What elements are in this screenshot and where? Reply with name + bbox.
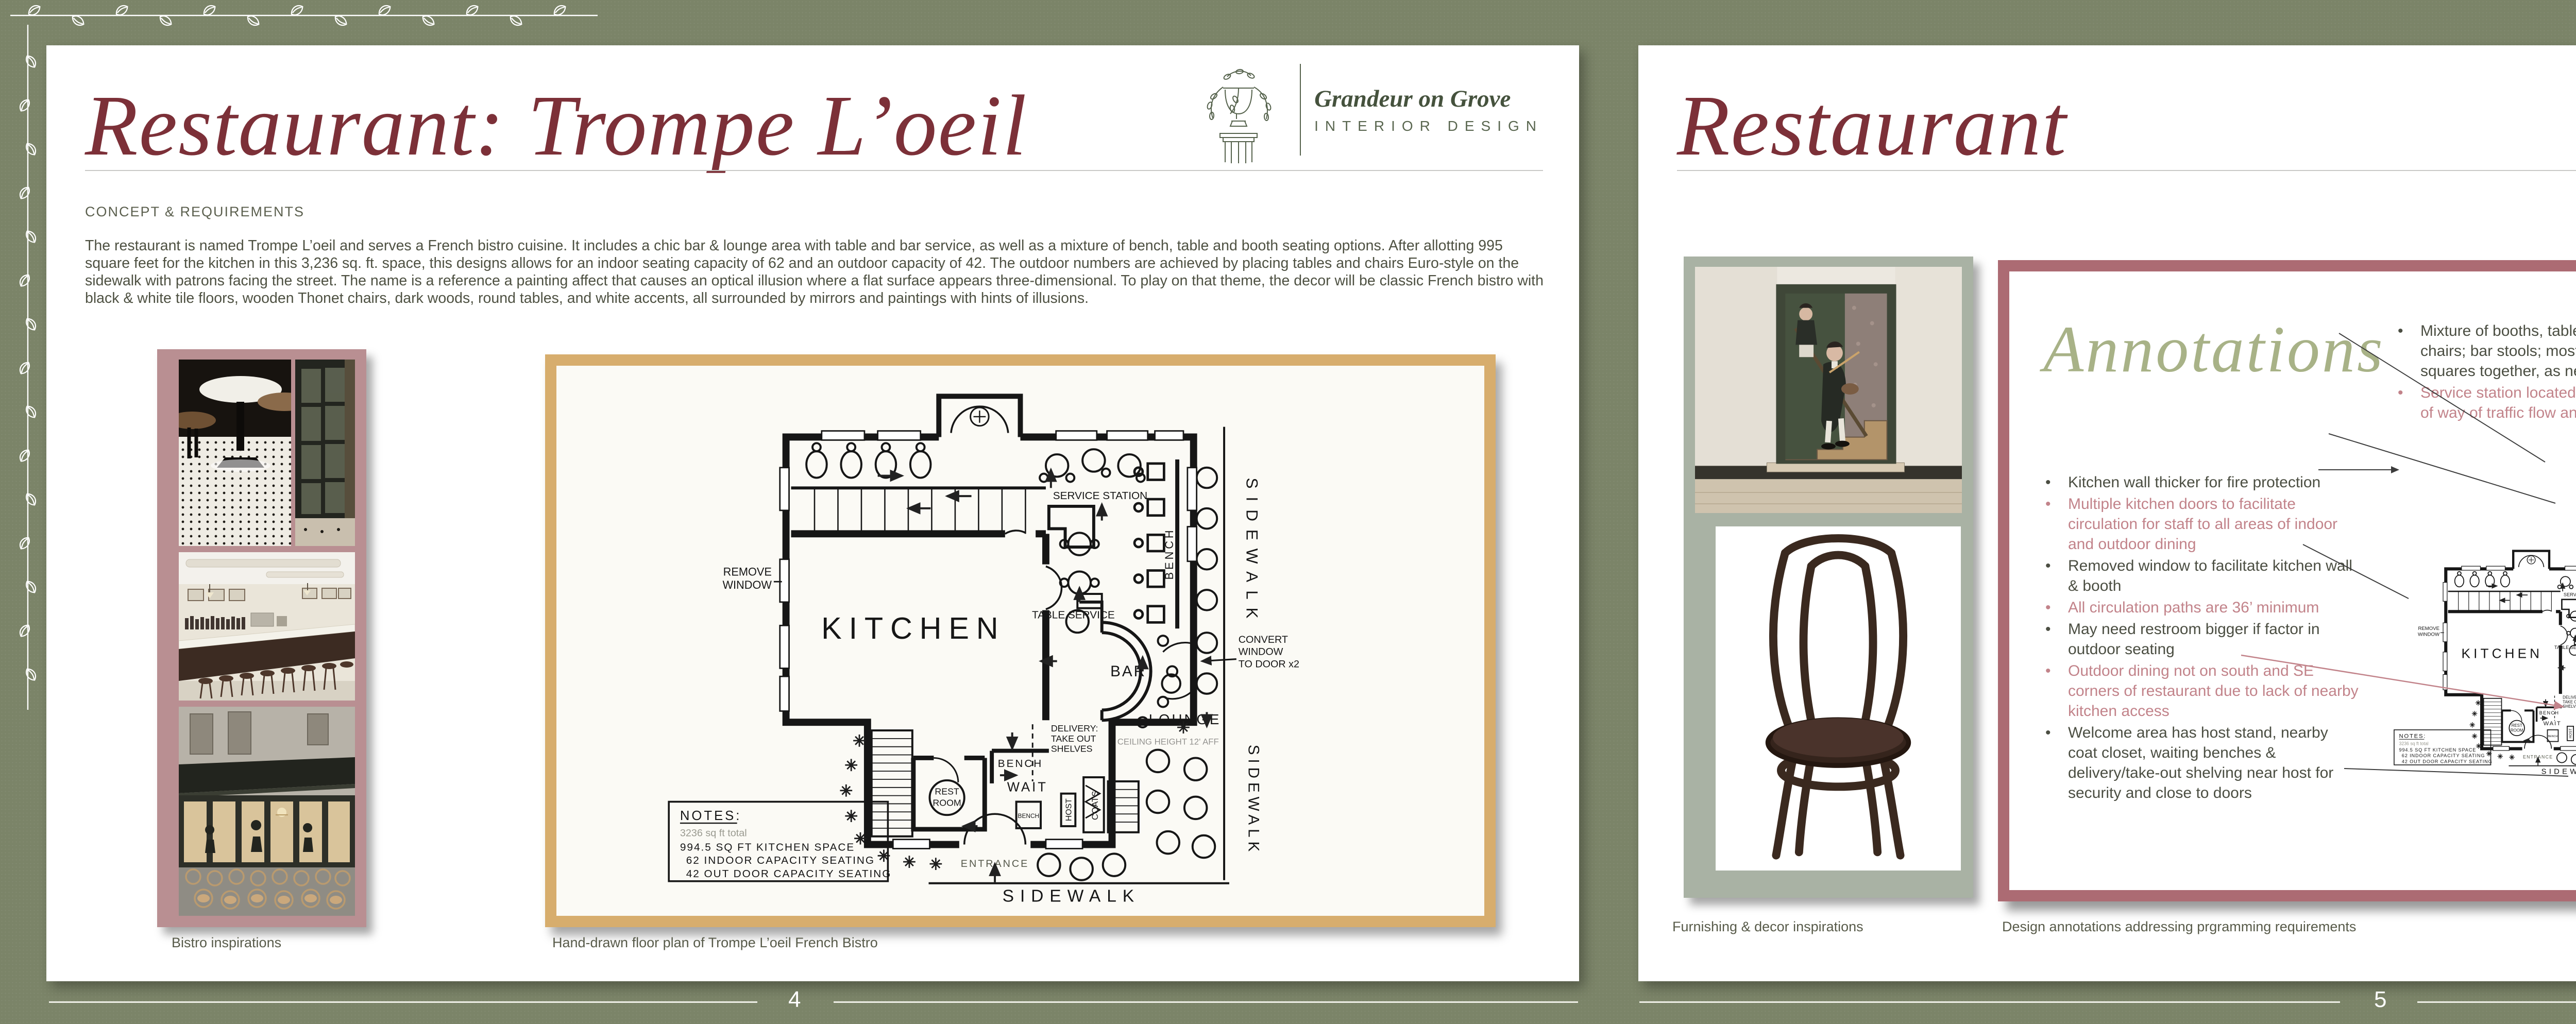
caption-annotations: Design annotations addressing prgramming… (2002, 919, 2356, 935)
section-header: CONCEPT & REQUIREMENTS (85, 204, 304, 220)
furnishing-photo-mat (1684, 257, 1973, 898)
header-divider-right (1677, 170, 2576, 171)
annotation-panel: Annotations Trompe L’oeil French Bistro … (1998, 260, 2576, 901)
annotation-bullet: Removed window to facilitate kitchen wal… (2036, 556, 2360, 596)
floor-plan-paper (556, 366, 1484, 916)
annotation-bullet: All circulation paths are 36’ minimum (2036, 598, 2360, 618)
caption-bistro-photos: Bistro inspirations (172, 935, 281, 951)
leaf-vine-left (8, 25, 47, 720)
annotations-title: Annotations (2043, 312, 2385, 387)
annotation-bullet: Outdoor dining not on south and SE corne… (2036, 661, 2360, 721)
page-number-left: 4 (788, 987, 801, 1013)
page-number-right: 5 (2374, 987, 2386, 1013)
page-title: Restaurant: Trompe L’oeil (85, 82, 1028, 169)
leaf-vine-top-left (0, 0, 618, 33)
logo-subtitle: INTERIOR DESIGN (1314, 118, 1543, 134)
annotation-bullet: Kitchen wall thicker for fire protection (2036, 472, 2360, 492)
floor-plan-frame (545, 354, 1496, 927)
footer-rule (2417, 1001, 2576, 1003)
bistro-photo-tile-floor (179, 360, 291, 546)
annotation-bullet: May need restroom bigger if factor in ou… (2036, 619, 2360, 659)
logo-divider (1300, 64, 1301, 156)
page-title-right: Restaurant (1677, 82, 2067, 169)
footer-rule (834, 1001, 1578, 1003)
page-right: Restaurant (1638, 45, 2576, 981)
thonet-chair-photo (1716, 526, 1961, 871)
bistro-photo-mat (157, 349, 366, 927)
footer-rule (49, 1001, 757, 1003)
annotation-bullet: Multiple kitchen doors to facilitate cir… (2036, 494, 2360, 554)
annotation-list-middle: Mixture of booths, tables for 2 & 4, ben… (2388, 321, 2576, 424)
annotation-bullet: Service station located near kitchen, bu… (2388, 383, 2576, 423)
concept-paragraph: The restaurant is named Trompe L’oeil an… (85, 237, 1548, 307)
floor-plan-image (556, 366, 1484, 916)
page-left: Restaurant: Trompe L’oeil (46, 45, 1579, 981)
urn-logo-icon (1191, 56, 1286, 163)
bistro-photo-glass-partition (295, 360, 355, 546)
annotated-floor-plan (2351, 515, 2576, 803)
bistro-photo-outdoor-cafe (179, 707, 355, 916)
bistro-photo-bar (179, 552, 355, 701)
logo-brand-name: Grandeur on Grove (1314, 85, 1543, 113)
annotation-list-left: Kitchen wall thicker for fire protection… (2036, 472, 2360, 805)
annotation-bullet: Welcome area has host stand, nearby coat… (2036, 723, 2360, 803)
annotation-bullet: Mixture of booths, tables for 2 & 4, ben… (2388, 321, 2576, 381)
presentation-spread: Restaurant: Trompe L’oeil (0, 0, 2576, 1024)
brand-logo: Grandeur on Grove INTERIOR DESIGN (1191, 56, 1543, 164)
trompe-loeil-painting-photo (1695, 267, 1962, 513)
footer-rule (1639, 1001, 2340, 1003)
caption-furnishing: Furnishing & decor inspirations (1672, 919, 1863, 935)
header-divider (85, 170, 1543, 171)
caption-floor-plan: Hand-drawn floor plan of Trompe L’oeil F… (552, 935, 878, 951)
